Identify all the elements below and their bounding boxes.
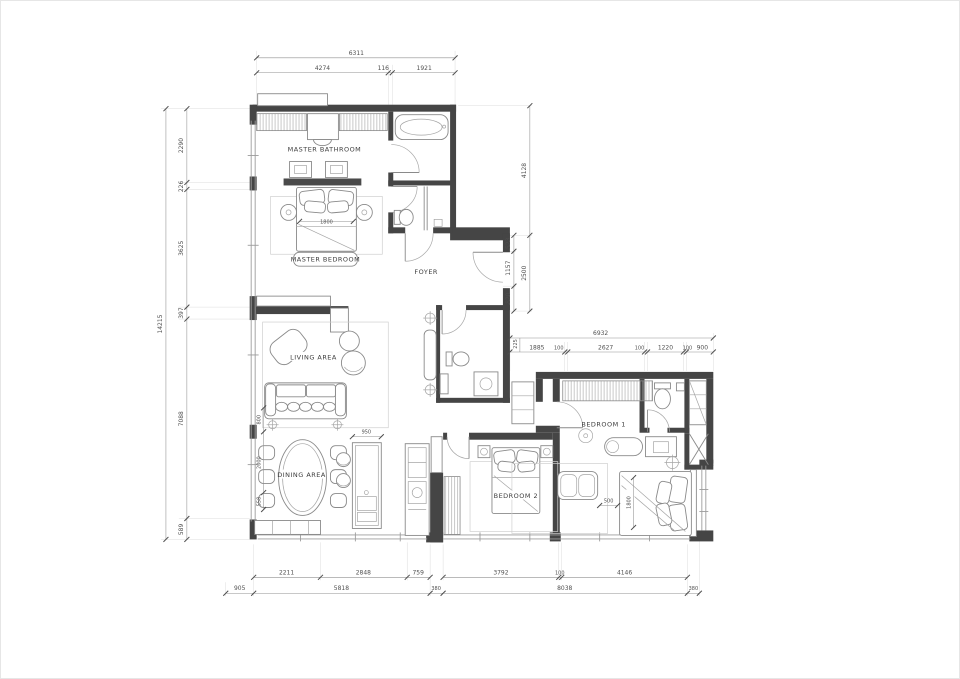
dim-bottom-total4: 380 <box>689 586 698 592</box>
wc-toilet <box>399 209 413 225</box>
corridor-cabinet <box>512 382 534 424</box>
label-master-bedroom: MASTER BEDROOM <box>291 256 360 264</box>
shower-fixture <box>434 219 442 226</box>
tv-cabinet <box>330 308 348 332</box>
dim-left-chain0: 800 <box>257 415 263 424</box>
dim-mid-seg4: 1220 <box>658 344 673 351</box>
pillow <box>304 201 326 214</box>
stool <box>336 453 350 467</box>
dim-left-seg1: 226 <box>178 181 185 193</box>
dim-top-seg0: 4274 <box>315 65 330 72</box>
toilet <box>654 389 670 409</box>
sink-left <box>290 162 312 178</box>
kitchen-island <box>352 443 381 529</box>
bath-shelf <box>676 383 684 391</box>
bathtub <box>395 115 448 140</box>
label-living-area: LIVING AREA <box>290 353 337 361</box>
dining-chair <box>259 470 275 484</box>
pillow <box>327 200 349 213</box>
dim-mid-seg5: 100 <box>683 345 692 351</box>
label-foyer: FOYER <box>414 268 437 276</box>
chaise <box>605 438 643 456</box>
dim-left-chain1: 2000 <box>257 456 263 469</box>
ceiling-light <box>423 383 437 397</box>
dimensions-mid-right: 6932 1885 100 2627 100 1220 100 900 225 <box>507 330 715 354</box>
ceiling-light <box>423 311 437 325</box>
floor-plan-drawing: MASTER BATHROOM MASTER BEDROOM FOYER LIV… <box>1 1 959 678</box>
dimensions-left: 14215 2290 226 3625 397 7088 589 <box>157 106 189 542</box>
dim-bottom-total1: 5818 <box>334 585 349 592</box>
dim-left-seg2: 3625 <box>178 240 185 255</box>
wardrobe-right <box>339 114 387 131</box>
dim-left-seg3: 397 <box>178 307 185 319</box>
dim-right-inner0: 523 <box>505 237 512 249</box>
dim-mid-seg3: 100 <box>635 345 644 351</box>
dim-mid-side: 225 <box>513 339 519 348</box>
dim-left-total: 14215 <box>157 314 164 333</box>
dim-bottom-total2: 380 <box>431 586 440 592</box>
stool <box>336 474 350 488</box>
bedside-table <box>541 446 553 458</box>
wardrobe-left <box>257 114 307 131</box>
dim-island: 950 <box>362 430 371 436</box>
bedside-table <box>478 446 490 458</box>
toilet-tank <box>654 383 670 389</box>
bedside-table-right <box>356 204 372 220</box>
dim-mid-total: 6932 <box>593 330 608 337</box>
label-bedroom-2: BEDROOM 2 <box>494 492 538 500</box>
dim-bottom-chain0: 2211 <box>279 569 294 576</box>
bedroom1-furniture <box>512 381 708 537</box>
door-bedroom-1 <box>557 402 583 428</box>
dimensions-bottom: 2211 2848 759 3792 100 4146 905 5818 380… <box>223 569 702 595</box>
dimensions-right-upper: 4128 2500 523 1157 820 <box>505 103 532 313</box>
sink-right <box>325 162 347 178</box>
dim-left-seg0: 2290 <box>178 138 185 153</box>
wardrobe <box>444 477 460 535</box>
master-suite-furniture <box>257 94 448 255</box>
dresser <box>646 437 677 457</box>
foyer-powder-furniture <box>423 311 498 397</box>
dim-left-chain2: 558 <box>257 497 263 506</box>
dim-mid-seg1: 100 <box>554 345 563 351</box>
bedroom2-furniture <box>444 446 558 535</box>
powder-toilet <box>453 352 469 366</box>
dimensions-top: 6311 4274 116 1921 <box>254 50 457 75</box>
powder-toilet-tank <box>446 352 452 366</box>
label-bedroom-1: BEDROOM 1 <box>581 421 625 429</box>
dim-top-seg2: 1921 <box>417 65 432 72</box>
door-entry <box>473 252 503 282</box>
floor-plan-page: MASTER BATHROOM MASTER BEDROOM FOYER LIV… <box>0 0 960 679</box>
pillow <box>517 461 535 473</box>
dim-bottom-chain2: 759 <box>412 569 424 576</box>
ceiling-light <box>267 419 279 431</box>
door-master-wc <box>391 186 417 212</box>
kitchen-counter <box>405 444 429 536</box>
ceiling-light <box>331 419 343 431</box>
dim-bottom-total0: 905 <box>234 585 246 592</box>
shaft <box>689 434 708 465</box>
coffee-table <box>339 331 359 351</box>
label-master-bathroom: MASTER BATHROOM <box>288 146 362 154</box>
dim-bedroom1-bed: 1800 <box>627 496 633 509</box>
door-master-suite <box>405 233 433 261</box>
dim-master-bed: 1800 <box>320 219 333 225</box>
bedside-table-left <box>281 204 297 220</box>
dim-mid-seg0: 1885 <box>529 344 544 351</box>
floor-lamp <box>579 429 593 443</box>
dim-right-outer1: 2500 <box>521 265 528 280</box>
dim-bottom-chain5: 4146 <box>617 569 632 576</box>
dim-top-seg1: 116 <box>378 65 390 72</box>
powder-shelf <box>440 374 448 394</box>
dim-bedroom1-gap: 500 <box>604 499 613 505</box>
dim-top-total: 6311 <box>349 50 364 57</box>
dim-right-inner1: 1157 <box>505 260 512 275</box>
tv-console <box>255 520 321 534</box>
dim-bottom-total3: 8038 <box>557 585 572 592</box>
pillow <box>497 461 515 473</box>
dim-mid-seg2: 2627 <box>598 344 613 351</box>
wardrobe <box>563 381 653 401</box>
dim-bottom-chain1: 2848 <box>356 569 371 576</box>
kitchen-cabinet <box>431 437 442 473</box>
dim-left-seg5: 589 <box>178 524 185 536</box>
accent-chair <box>266 326 310 369</box>
console-cabinet <box>257 296 331 306</box>
loveseat <box>558 472 598 500</box>
vanity-niche <box>308 114 339 140</box>
door-bedroom1-bath <box>648 410 670 432</box>
dim-bottom-chain4: 100 <box>555 570 564 576</box>
door-master-bathtub <box>391 145 419 173</box>
dim-right-inner2: 820 <box>505 292 512 304</box>
wardrobe-top-box <box>258 94 328 106</box>
label-dining-area: DINING AREA <box>277 471 326 479</box>
dim-bottom-chain3: 3792 <box>493 569 508 576</box>
powder-vanity <box>474 372 498 396</box>
hall-console <box>424 330 436 380</box>
dim-left-seg4: 7088 <box>178 411 185 426</box>
door-bedroom-2 <box>447 437 469 459</box>
dining-chair <box>330 494 346 508</box>
door-powder-room <box>442 310 466 334</box>
dim-right-outer0: 4128 <box>521 163 528 178</box>
dim-mid-seg6: 900 <box>697 344 709 351</box>
